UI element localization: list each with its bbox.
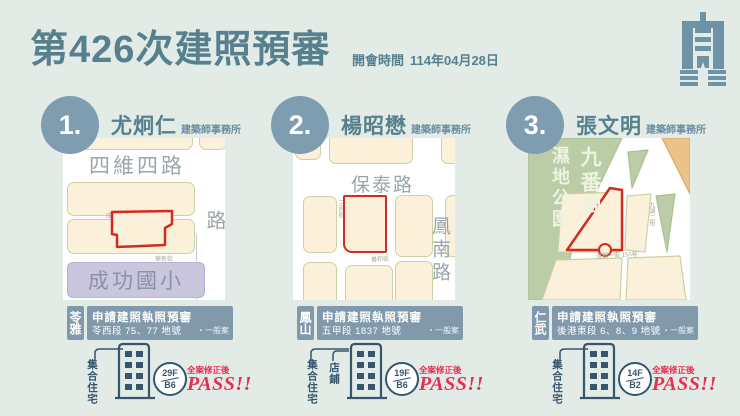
building-use-label: 集合住宅 (550, 359, 565, 405)
review-type: ・一般案 (662, 325, 694, 336)
building-summary-row: 集合住宅 14F B2 全案修正後 PASS!! (528, 348, 708, 414)
site-plot-outline (103, 202, 183, 254)
landmark-school: 成功國小 (67, 262, 205, 298)
page-title: 第426次建照預審 (30, 18, 330, 73)
road-edge-line (196, 234, 197, 300)
park-name-line2: 濕地公園 (547, 146, 573, 230)
tower-building-logo-icon (678, 12, 728, 86)
site-map-renwu: 九番埤 濕地公園 九湖二街 澄觀一街 155巷 (528, 138, 690, 300)
map-block (329, 138, 413, 164)
building-summary-row: 集合住宅 店鋪 19F B6 全案修正後 PASS!! (293, 348, 473, 414)
map-block (345, 265, 393, 300)
review-type: ・一般案 (197, 325, 229, 336)
case-info-bar: 申請建照執照預審 五甲段 1837 地號 ・一般案 (317, 306, 463, 340)
infographic-page: 第426次建照預審 開會時間114年04月28日 1. 尤炯仁建築師事務所 四維… (0, 0, 740, 416)
building-use-label: 店鋪 (327, 362, 342, 385)
review-type: ・一般案 (427, 325, 459, 336)
result-pass: PASS!! (419, 373, 484, 396)
floors-below: B6 (396, 380, 408, 390)
floors-badge: 19F B6 (385, 362, 419, 396)
lot-number: 後港東段 6、8、9 地號 (557, 323, 661, 337)
architect-name: 尤炯仁 (111, 115, 177, 138)
architect-firm-suffix: 建築師事務所 (646, 125, 706, 136)
road-label-right: 成功一路 (200, 210, 225, 300)
case-card-1: 1. 尤炯仁建築師事務所 四維四路 成功一巷 55巷 華新街 成功國小 成功一路… (63, 96, 243, 416)
architect-name: 張文明 (576, 115, 642, 138)
road-label-top: 四維四路 (89, 150, 185, 180)
site-map-fengshan: 保泰路 三自街 鳳南路 善和街 (293, 138, 455, 300)
floors-above: 29F (162, 368, 178, 378)
architect-firm-suffix: 建築師事務所 (181, 125, 241, 136)
case-card-2: 2. 楊昭懋建築師事務所 保泰路 三自街 鳳南路 善和街 鳳山 申請建照執照預審… (293, 96, 473, 416)
floors-badge: 29F B6 (153, 362, 187, 396)
building-summary-row: 集合住宅 29F B6 全案修正後 PASS!! (63, 348, 243, 414)
case-number-badge: 3. (506, 96, 564, 154)
district-badge: 鳳山 (297, 306, 314, 340)
case-info-bar: 申請建照執照預審 苓西段 75、77 地號 ・一般案 (87, 306, 233, 340)
result-pass: PASS!! (187, 373, 252, 396)
lane-label-right: 九湖二街 (647, 202, 656, 226)
floors-badge: 14F B2 (618, 362, 652, 396)
building-use-label: 集合住宅 (85, 359, 100, 405)
building-icon (115, 342, 155, 404)
map-block (303, 196, 337, 253)
meeting-time: 開會時間114年04月28日 (352, 50, 499, 69)
architect-name-row: 尤炯仁建築師事務所 (111, 110, 241, 140)
meeting-date: 114年04月28日 (410, 53, 499, 68)
floors-below: B6 (164, 380, 176, 390)
case-info-bar: 申請建照執照預審 後港東段 6、8、9 地號 ・一般案 (552, 306, 698, 340)
result-pass: PASS!! (652, 373, 717, 396)
floors-above: 14F (627, 368, 643, 378)
building-icon (580, 342, 620, 404)
lot-number: 五甲段 1837 地號 (322, 323, 401, 337)
building-use-label: 集合住宅 (305, 359, 320, 405)
site-plot-outline (343, 195, 387, 253)
district-badge: 仁武 (532, 306, 549, 340)
park-name-line1: 九番埤 (574, 146, 604, 221)
floors-above: 19F (394, 368, 410, 378)
case-card-3: 3. 張文明建築師事務所 九番埤 濕地公園 九湖二街 澄觀一街 155巷 (528, 96, 708, 416)
architect-name-row: 張文明建築師事務所 (576, 110, 706, 140)
district-badge: 苓雅 (67, 306, 84, 340)
lot-number: 苓西段 75、77 地號 (92, 323, 181, 337)
map-block (395, 261, 433, 300)
map-block (303, 262, 337, 300)
architect-name-row: 楊昭懋建築師事務所 (341, 110, 471, 140)
building-icon (347, 342, 387, 404)
architect-name: 楊昭懋 (341, 115, 407, 138)
road-label-top: 保泰路 (351, 170, 414, 197)
map-block (441, 138, 455, 164)
floors-below: B2 (629, 380, 641, 390)
meeting-label: 開會時間 (352, 53, 404, 68)
case-number-badge: 2. (271, 96, 329, 154)
architect-firm-suffix: 建築師事務所 (411, 125, 471, 136)
case-number-badge: 1. (41, 96, 99, 154)
site-map-lingya: 四維四路 成功一巷 55巷 華新街 成功國小 成功一路 (63, 138, 225, 300)
